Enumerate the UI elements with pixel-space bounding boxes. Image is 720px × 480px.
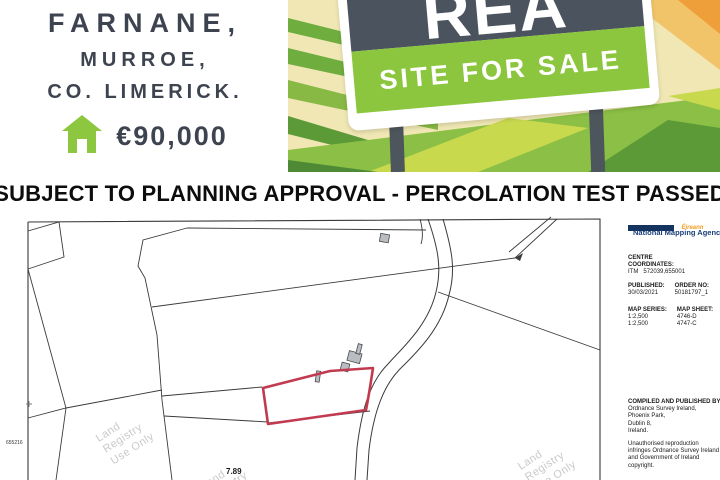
site-for-sale-label: SITE FOR SALE [378,44,623,96]
copyright-line: infringes Ordnance Survey Ireland [628,448,719,454]
itm-label: ITM [628,269,638,275]
copyright-line: Unauthorised reproduction [628,441,699,447]
copyright-line: copyright. [628,463,654,469]
published-label: PUBLISHED: [628,283,665,289]
copyright-line: and Government of Ireland [628,455,699,461]
map-series-value: 1:2,500 [628,321,648,327]
address-line-3: CO. LIMERICK. [0,81,290,104]
centre-coordinates-block: CENTRE COORDINATES: ITM 572039,655001 [628,255,685,277]
address-line-2: MURROE, [0,49,290,72]
map-series-label: MAP SERIES: [628,307,667,313]
corner-coordinate: 655216 [6,440,23,446]
listing-header: FARNANE, MURROE, CO. LIMERICK. €90,000 [0,0,290,172]
agency-title: National Mapping Agency [633,228,720,237]
sign-post-left [389,120,405,172]
centre-label-1: CENTRE [628,255,653,261]
order-value: 50181797_1 [675,290,708,296]
address-line-1: FARNANE, [0,8,290,39]
price-row: €90,000 [0,115,290,158]
published-order-block: PUBLISHED: 30/03/2021 ORDER NO: 50181797… [628,283,709,297]
compiled-line: Phoenix Park, [628,413,665,419]
compiled-line: Dublin 8, [628,421,652,427]
map-sheet-label: MAP SHEET: [677,307,713,313]
series-sheet-block: MAP SERIES: 1:2,500 1:2,500 MAP SHEET: 4… [628,307,713,329]
planning-banner-text: SUBJECT TO PLANNING APPROVAL - PERCOLATI… [0,181,720,207]
map-series-value: 1:2,500 [628,314,648,320]
parcel-label: 7.89 [226,467,242,476]
compiled-title: COMPILED AND PUBLISHED BY: [628,399,720,405]
compiled-block: COMPILED AND PUBLISHED BY: Ordnance Surv… [628,399,720,435]
site-for-sale-illustration: REA SITE FOR SALE [288,0,720,172]
map-sheet-value: 4747-C [677,321,697,327]
price-label: €90,000 [116,121,228,152]
planning-banner: SUBJECT TO PLANNING APPROVAL - PERCOLATI… [0,176,720,212]
compiled-line: Ireland. [628,428,648,434]
compiled-line: Ordnance Survey Ireland, [628,406,696,412]
itm-value: 572039,655001 [643,269,685,275]
published-value: 30/03/2021 [628,290,658,296]
house-icon [62,115,102,158]
building-footprints [315,233,389,382]
copyright-block: Unauthorised reproduction infringes Ordn… [628,441,719,470]
centre-label-2: COORDINATES: [628,262,674,268]
map-legend-panel: Éireann National Mapping Agency CENTRE C… [601,215,720,480]
map-sheet-value: 4746-D [677,314,697,320]
order-label: ORDER NO: [675,283,709,289]
sign-post-right [589,104,605,172]
